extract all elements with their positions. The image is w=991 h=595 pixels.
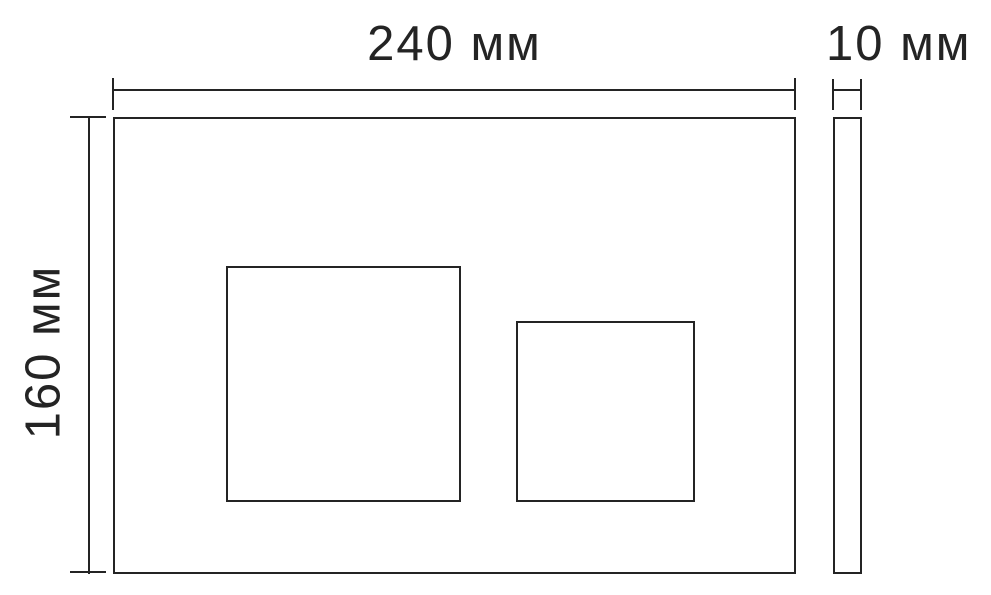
width-dimension-label: 240 мм	[113, 20, 796, 69]
small-flush-button-outline	[516, 321, 695, 502]
side-view-plate-outline	[833, 117, 862, 574]
height-dimension-tick-bottom	[70, 571, 106, 573]
width-dimension-line	[113, 89, 796, 91]
thickness-dimension-tick-right	[860, 79, 862, 110]
width-dimension-tick-left	[112, 78, 114, 110]
technical-drawing: 240 мм 10 мм 160 мм	[0, 0, 991, 595]
height-dimension-label: 160 мм	[20, 265, 69, 440]
height-dimension-tick-top	[70, 116, 106, 118]
large-flush-button-outline	[226, 266, 461, 502]
thickness-dimension-label: 10 мм	[826, 20, 972, 69]
thickness-dimension-tick-left	[832, 79, 834, 110]
thickness-dimension-line	[833, 89, 862, 91]
height-dimension-line	[88, 117, 90, 574]
width-dimension-tick-right	[794, 78, 796, 110]
front-view-plate-outline	[113, 117, 796, 574]
